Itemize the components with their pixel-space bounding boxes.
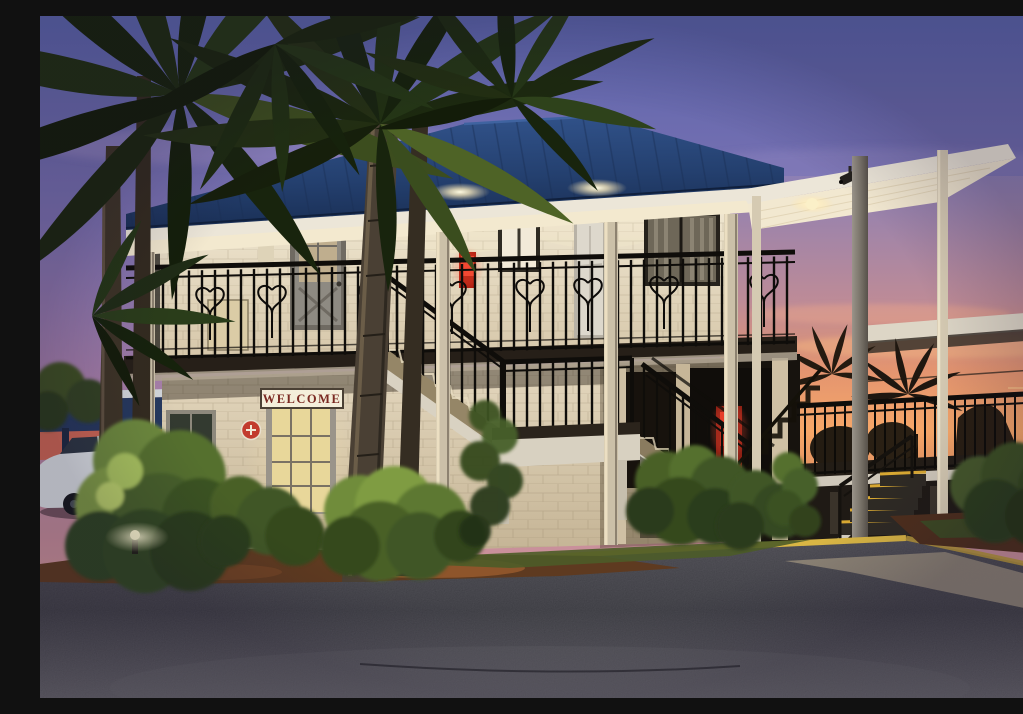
vignette	[40, 16, 1023, 698]
motel-dusk-photo: WELCOME	[40, 16, 1023, 698]
motel-photo-canvas: WELCOME	[40, 16, 1023, 698]
